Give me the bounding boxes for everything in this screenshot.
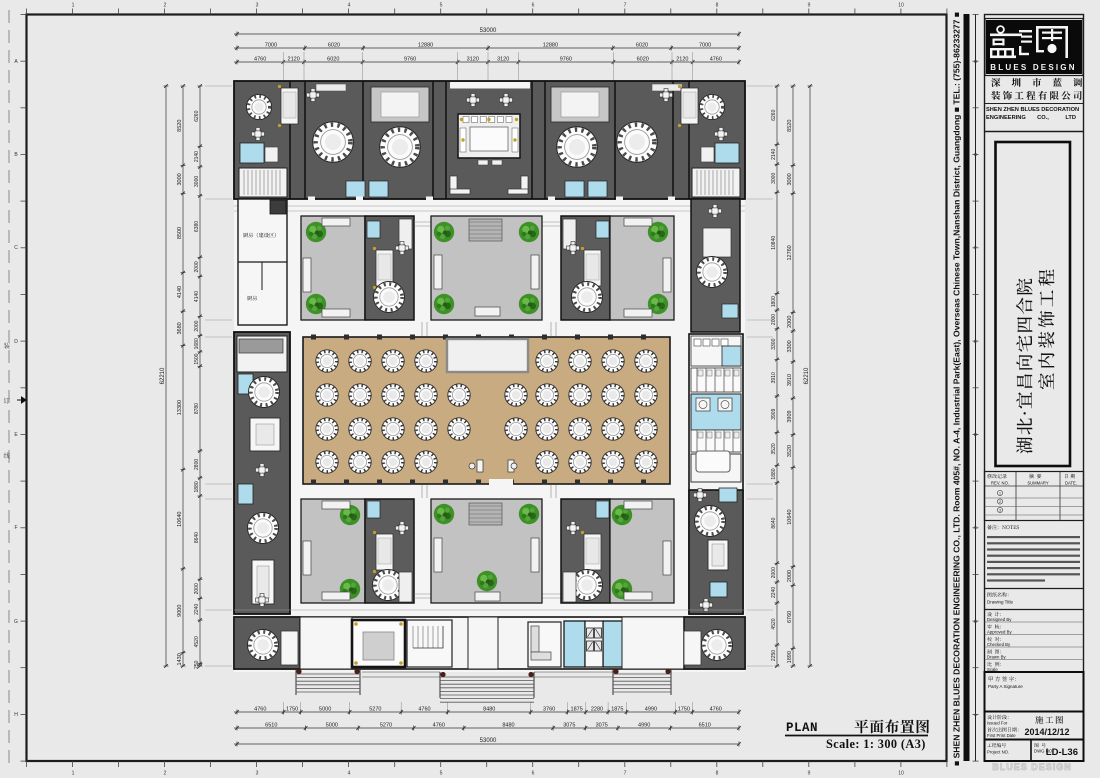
svg-text:1680: 1680 <box>194 338 200 349</box>
svg-text:62210: 62210 <box>804 367 810 384</box>
svg-text:C: C <box>14 245 18 251</box>
svg-text:1750: 1750 <box>286 707 298 713</box>
svg-text:6: 6 <box>532 771 535 777</box>
svg-text:5000: 5000 <box>319 707 331 713</box>
svg-text:Scale: 1: 300 (A3): Scale: 1: 300 (A3) <box>826 737 926 751</box>
svg-text:8640: 8640 <box>194 532 200 543</box>
svg-text:3000: 3000 <box>771 173 777 184</box>
svg-text:Project NO.: Project NO. <box>987 750 1009 755</box>
svg-text:8480: 8480 <box>502 723 514 729</box>
svg-text:12880: 12880 <box>543 43 558 49</box>
svg-text:LTD: LTD <box>1065 115 1076 121</box>
svg-text:Approved By: Approved By <box>987 630 1012 635</box>
svg-text:Designed By: Designed By <box>987 617 1012 622</box>
svg-text:G: G <box>14 619 18 625</box>
svg-text:9: 9 <box>808 3 811 9</box>
svg-text:1750: 1750 <box>678 707 690 713</box>
svg-text:3910: 3910 <box>771 372 777 383</box>
svg-text:2000: 2000 <box>787 316 793 328</box>
svg-text:REV. NO.: REV. NO. <box>991 481 1009 486</box>
svg-text:6510: 6510 <box>265 723 277 729</box>
svg-text:10640: 10640 <box>787 509 793 524</box>
svg-text:First Print Date: First Print Date <box>987 733 1016 738</box>
svg-text:BLUES DESIGN: BLUES DESIGN <box>992 762 1072 772</box>
svg-text:3: 3 <box>256 3 259 9</box>
svg-text:4140: 4140 <box>177 286 183 298</box>
svg-text:8480: 8480 <box>483 707 495 713</box>
svg-text:1890: 1890 <box>787 651 793 663</box>
svg-text:4760: 4760 <box>254 57 266 63</box>
svg-text:5270: 5270 <box>380 723 392 729</box>
svg-text:4760: 4760 <box>710 707 722 713</box>
svg-text:4520: 4520 <box>771 618 777 629</box>
svg-text:SUMMARY: SUMMARY <box>1027 481 1049 486</box>
svg-text:4520: 4520 <box>194 636 200 647</box>
svg-text:2000: 2000 <box>194 583 200 594</box>
svg-text:9760: 9760 <box>404 57 416 63</box>
svg-text:CO.,: CO., <box>1037 115 1049 121</box>
svg-text:2280: 2280 <box>591 707 603 713</box>
svg-text:2240: 2240 <box>771 587 777 598</box>
svg-text:2000: 2000 <box>771 314 777 325</box>
svg-text:4990: 4990 <box>638 723 650 729</box>
svg-text:62210: 62210 <box>160 367 166 384</box>
svg-text:3909: 3909 <box>787 410 793 422</box>
svg-text:4990: 4990 <box>645 707 657 713</box>
svg-text:8780: 8780 <box>194 403 200 414</box>
svg-text:7: 7 <box>624 771 627 777</box>
svg-text:2000: 2000 <box>787 570 793 582</box>
svg-text:1430: 1430 <box>177 653 183 665</box>
svg-text:F: F <box>14 525 17 531</box>
svg-text:3000: 3000 <box>194 176 200 187</box>
svg-text:12760: 12760 <box>787 245 793 260</box>
svg-text:9760: 9760 <box>560 57 572 63</box>
svg-text:Party A Signature: Party A Signature <box>988 684 1023 689</box>
svg-text:10640: 10640 <box>177 512 183 527</box>
svg-text:DATE.: DATE. <box>1065 481 1077 486</box>
svg-text:6510: 6510 <box>699 723 711 729</box>
svg-text:2014/12/12: 2014/12/12 <box>1024 727 1069 737</box>
svg-text:Drawn By: Drawn By <box>987 655 1006 660</box>
svg-text:4760: 4760 <box>254 707 266 713</box>
svg-text:8: 8 <box>716 771 719 777</box>
svg-text:Checked By: Checked By <box>987 642 1011 647</box>
svg-text:12880: 12880 <box>418 43 433 49</box>
svg-text:6020: 6020 <box>328 43 340 49</box>
svg-text:3680: 3680 <box>177 322 183 334</box>
svg-text:8: 8 <box>716 3 719 9</box>
svg-text:2140: 2140 <box>194 151 200 162</box>
svg-text:2000: 2000 <box>771 567 777 578</box>
svg-text:1880: 1880 <box>771 468 777 479</box>
svg-text:H: H <box>974 59 977 64</box>
svg-text:6260: 6260 <box>771 109 777 120</box>
svg-text:6020: 6020 <box>637 57 649 63</box>
svg-text:4760: 4760 <box>710 57 722 63</box>
svg-text:3075: 3075 <box>563 723 575 729</box>
svg-text:250: 250 <box>194 660 200 669</box>
svg-text:8520: 8520 <box>177 120 183 132</box>
svg-text:6020: 6020 <box>327 57 339 63</box>
svg-text:3000: 3000 <box>177 173 183 185</box>
svg-text:6260: 6260 <box>194 110 200 121</box>
svg-text:2140: 2140 <box>771 149 777 160</box>
svg-text:3909: 3909 <box>771 408 777 419</box>
svg-text:5000: 5000 <box>326 723 338 729</box>
svg-text:6: 6 <box>532 3 535 9</box>
svg-text:ENGINEERING: ENGINEERING <box>986 115 1026 121</box>
svg-text:6020: 6020 <box>636 43 648 49</box>
svg-text:3520: 3520 <box>771 443 777 454</box>
svg-text:A: A <box>974 712 977 717</box>
svg-text:7000: 7000 <box>699 43 711 49</box>
svg-text:3910: 3910 <box>787 374 793 386</box>
svg-text:BLUES DESIGN: BLUES DESIGN <box>990 63 1076 72</box>
svg-text:8500: 8500 <box>177 227 183 239</box>
svg-text:2000: 2000 <box>194 320 200 331</box>
svg-text:G: G <box>974 152 978 157</box>
svg-text:6760: 6760 <box>787 611 793 623</box>
svg-text:1: 1 <box>72 3 75 9</box>
svg-text:1875: 1875 <box>571 707 583 713</box>
svg-text:D: D <box>14 339 18 345</box>
svg-text:3520: 3520 <box>787 445 793 457</box>
svg-text:3: 3 <box>256 771 259 777</box>
svg-text:2240: 2240 <box>194 604 200 615</box>
svg-text:9: 9 <box>808 771 811 777</box>
svg-text:3760: 3760 <box>543 707 555 713</box>
svg-text:SHEN ZHEN BLUES DECORATION: SHEN ZHEN BLUES DECORATION <box>986 107 1079 113</box>
svg-text:3120: 3120 <box>467 57 479 63</box>
svg-text:2800: 2800 <box>194 459 200 470</box>
svg-text:10: 10 <box>898 771 904 777</box>
svg-text:3120: 3120 <box>497 57 509 63</box>
svg-text:Issued For: Issued For <box>987 721 1008 726</box>
svg-text:6380: 6380 <box>194 221 200 232</box>
svg-text:7000: 7000 <box>265 43 277 49</box>
svg-text:53000: 53000 <box>480 738 497 744</box>
svg-text:4760: 4760 <box>418 707 430 713</box>
svg-text:8640: 8640 <box>771 517 777 528</box>
svg-text:5: 5 <box>440 3 443 9</box>
svg-text:5270: 5270 <box>369 707 381 713</box>
svg-text:2: 2 <box>164 3 167 9</box>
svg-text:3300: 3300 <box>787 340 793 352</box>
svg-text:Drawing Title: Drawing Title <box>987 600 1014 605</box>
svg-text:3000: 3000 <box>787 173 793 185</box>
svg-text:3075: 3075 <box>596 723 608 729</box>
svg-text:PLAN: PLAN <box>786 721 818 735</box>
svg-text:4140: 4140 <box>194 291 200 302</box>
svg-text:LD-L36: LD-L36 <box>1046 747 1078 758</box>
svg-text:■ SHEN ZHEN BLUES DECORATION E: ■ SHEN ZHEN BLUES DECORATION ENGINEERING… <box>952 12 962 766</box>
svg-text:1875: 1875 <box>611 707 623 713</box>
svg-text:10: 10 <box>898 3 904 9</box>
svg-text:4: 4 <box>348 771 351 777</box>
svg-text:B: B <box>974 619 977 624</box>
svg-text:E: E <box>974 339 977 344</box>
svg-text:4: 4 <box>348 3 351 9</box>
svg-text:2000: 2000 <box>194 261 200 272</box>
svg-text:1: 1 <box>72 771 75 777</box>
svg-text:3300: 3300 <box>771 338 777 349</box>
svg-text:10840: 10840 <box>771 236 777 250</box>
svg-text:1880: 1880 <box>194 481 200 492</box>
svg-text:1800: 1800 <box>771 296 777 307</box>
svg-text:4760: 4760 <box>433 723 445 729</box>
svg-text:2120: 2120 <box>676 57 688 63</box>
svg-text:F: F <box>974 245 977 250</box>
svg-text:5: 5 <box>440 771 443 777</box>
svg-text:2: 2 <box>164 771 167 777</box>
svg-text:2120: 2120 <box>288 57 300 63</box>
svg-text:2250: 2250 <box>771 650 777 661</box>
svg-text:8520: 8520 <box>787 120 793 132</box>
svg-text:53000: 53000 <box>480 28 497 34</box>
svg-text:9000: 9000 <box>177 605 183 617</box>
svg-text:1500: 1500 <box>194 353 200 364</box>
svg-text:H: H <box>14 712 18 718</box>
svg-text:13300: 13300 <box>177 400 183 415</box>
svg-text:7: 7 <box>624 3 627 9</box>
